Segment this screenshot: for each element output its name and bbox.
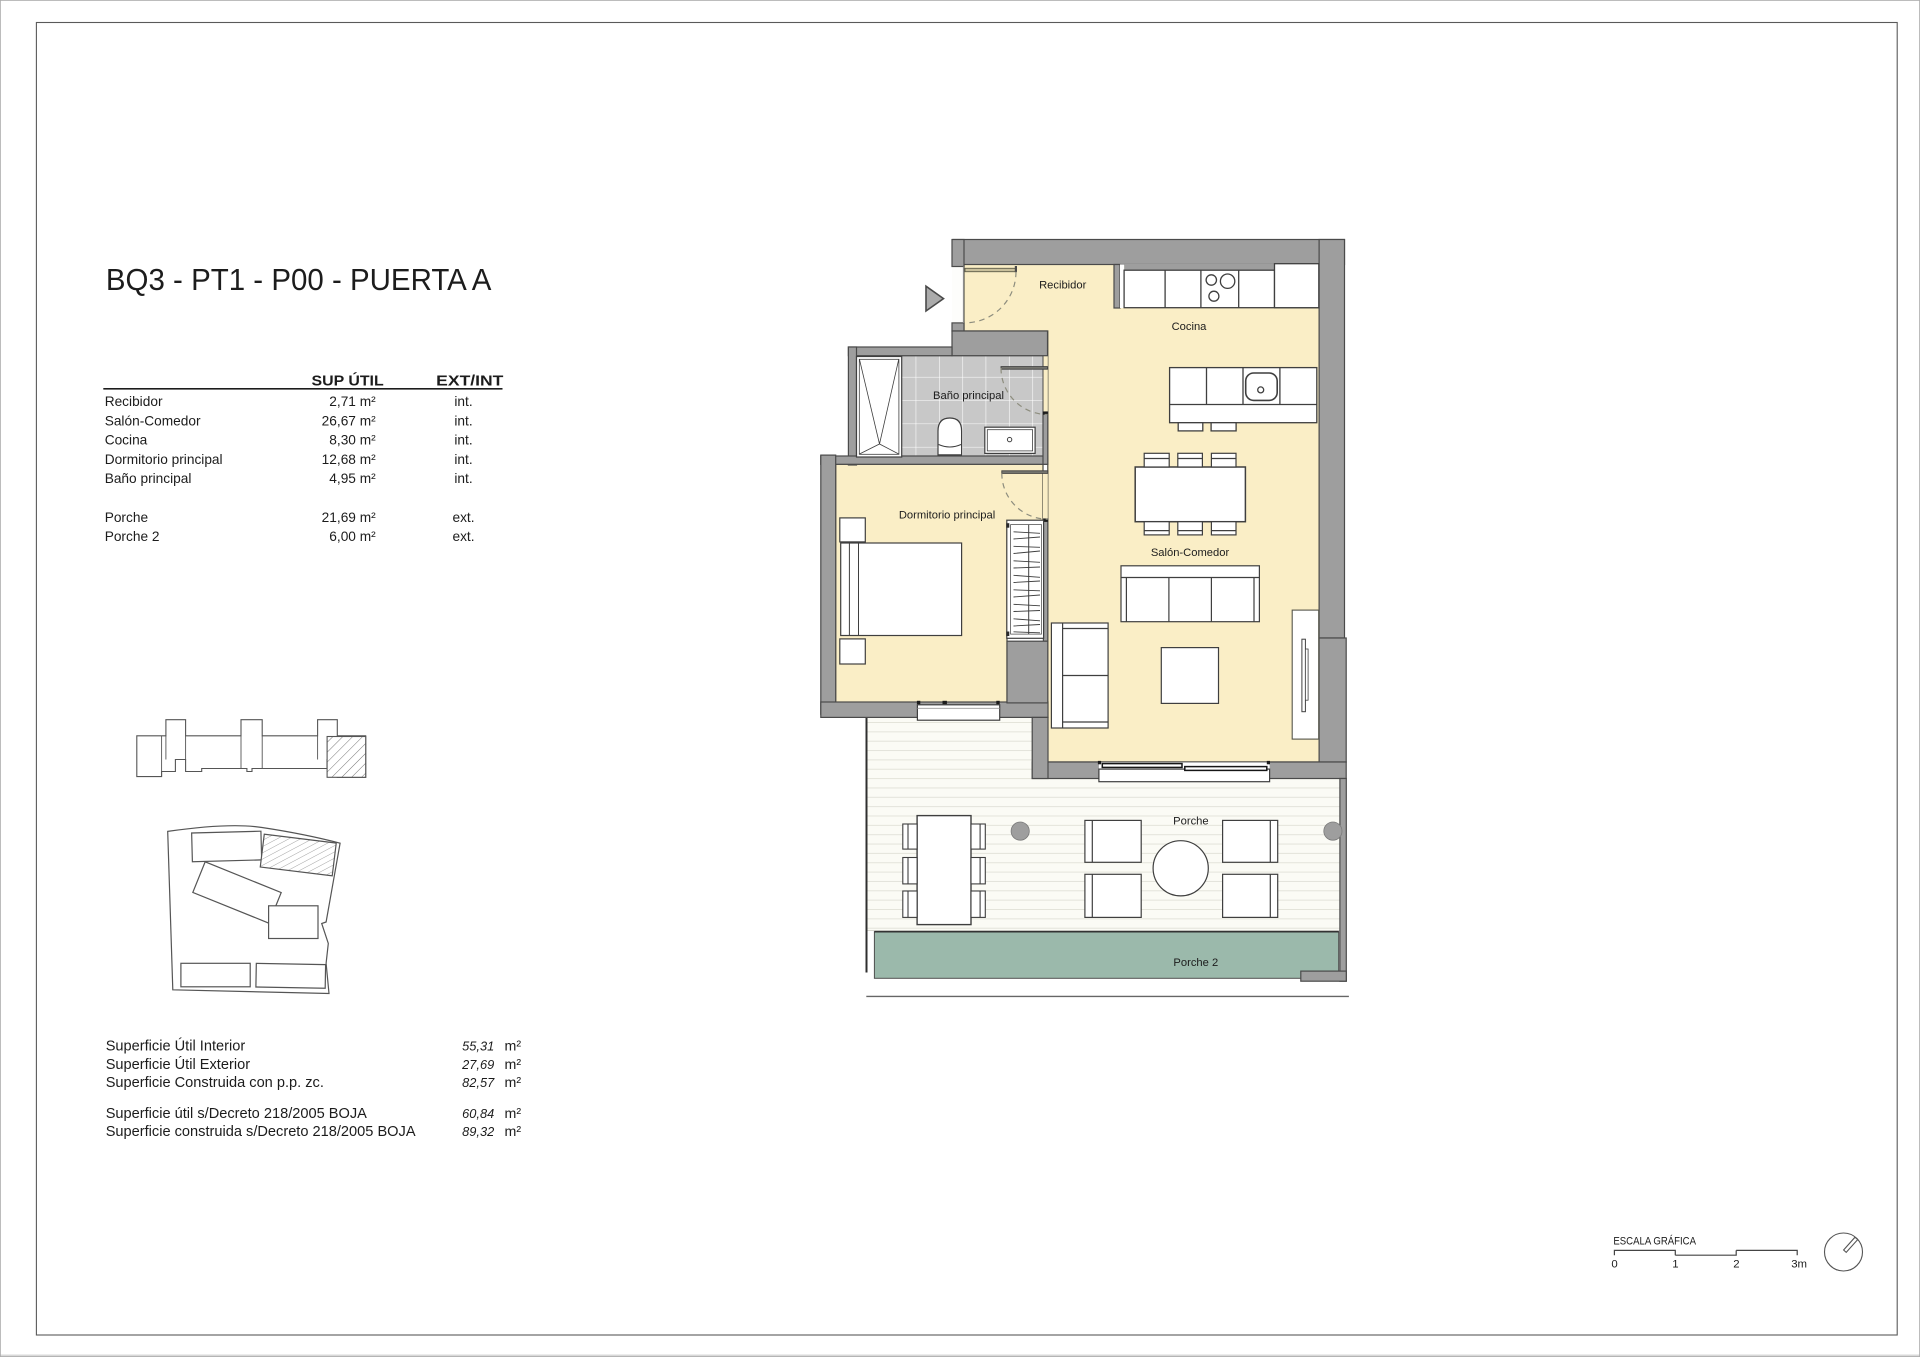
svg-text:int.: int. — [454, 471, 472, 486]
svg-text:m²: m² — [505, 1057, 522, 1073]
svg-text:60,84: 60,84 — [462, 1106, 494, 1121]
svg-text:Porche 2: Porche 2 — [1173, 957, 1218, 969]
svg-text:82,57: 82,57 — [462, 1075, 495, 1090]
svg-text:SUP ÚTIL: SUP ÚTIL — [312, 371, 384, 389]
svg-text:ext.: ext. — [452, 510, 474, 525]
svg-text:Baño principal: Baño principal — [933, 390, 1004, 402]
svg-text:26,67 m²: 26,67 m² — [322, 413, 376, 428]
svg-text:Recibidor: Recibidor — [1039, 280, 1087, 292]
svg-text:55,31: 55,31 — [462, 1039, 494, 1054]
svg-text:m²: m² — [505, 1106, 522, 1122]
svg-text:int.: int. — [454, 433, 472, 448]
svg-text:Superficie Construida con p.p.: Superficie Construida con p.p. zc. — [106, 1075, 324, 1091]
svg-text:27,69: 27,69 — [461, 1057, 494, 1072]
svg-text:8,30 m²: 8,30 m² — [329, 433, 376, 448]
svg-text:21,69 m²: 21,69 m² — [322, 510, 376, 525]
svg-text:Porche: Porche — [1173, 816, 1208, 828]
svg-text:Porche: Porche — [105, 510, 148, 525]
svg-text:int.: int. — [454, 452, 472, 467]
svg-text:Superficie Útil Exterior: Superficie Útil Exterior — [106, 1056, 251, 1073]
svg-text:2,71 m²: 2,71 m² — [329, 394, 376, 409]
svg-text:1: 1 — [1672, 1259, 1678, 1271]
svg-text:m²: m² — [505, 1075, 522, 1091]
svg-text:Salón-Comedor: Salón-Comedor — [105, 413, 201, 428]
svg-text:EXT/INT: EXT/INT — [436, 373, 503, 389]
svg-text:2: 2 — [1733, 1259, 1739, 1271]
svg-text:ESCALA GRÁFICA: ESCALA GRÁFICA — [1613, 1234, 1696, 1247]
svg-text:Dormitorio principal: Dormitorio principal — [899, 510, 995, 522]
svg-text:89,32: 89,32 — [462, 1124, 494, 1139]
svg-text:3m: 3m — [1791, 1259, 1807, 1271]
svg-text:m²: m² — [505, 1039, 522, 1055]
svg-text:ext.: ext. — [452, 529, 474, 544]
svg-text:6,00 m²: 6,00 m² — [329, 529, 376, 544]
svg-text:int.: int. — [454, 413, 472, 428]
svg-text:BQ3 - PT1 - P00 - PUERTA A: BQ3 - PT1 - P00 - PUERTA A — [106, 262, 492, 297]
svg-text:Superficie Útil Interior: Superficie Útil Interior — [106, 1038, 246, 1055]
svg-text:Cocina: Cocina — [1172, 321, 1208, 333]
svg-text:Dormitorio principal: Dormitorio principal — [105, 452, 223, 467]
svg-text:12,68 m²: 12,68 m² — [322, 452, 376, 467]
svg-text:Recibidor: Recibidor — [105, 394, 163, 409]
svg-text:int.: int. — [454, 394, 472, 409]
svg-text:Porche 2: Porche 2 — [105, 529, 160, 544]
svg-text:Cocina: Cocina — [105, 433, 148, 448]
svg-text:Superficie útil s/Decreto 218/: Superficie útil s/Decreto 218/2005 BOJA — [106, 1106, 367, 1122]
svg-text:Baño principal: Baño principal — [105, 471, 192, 486]
svg-text:0: 0 — [1611, 1259, 1617, 1271]
svg-text:4,95 m²: 4,95 m² — [329, 471, 376, 486]
svg-text:Salón-Comedor: Salón-Comedor — [1151, 547, 1230, 559]
svg-text:Superficie construida s/Decret: Superficie construida s/Decreto 218/2005… — [106, 1124, 416, 1140]
svg-text:m²: m² — [505, 1124, 522, 1140]
